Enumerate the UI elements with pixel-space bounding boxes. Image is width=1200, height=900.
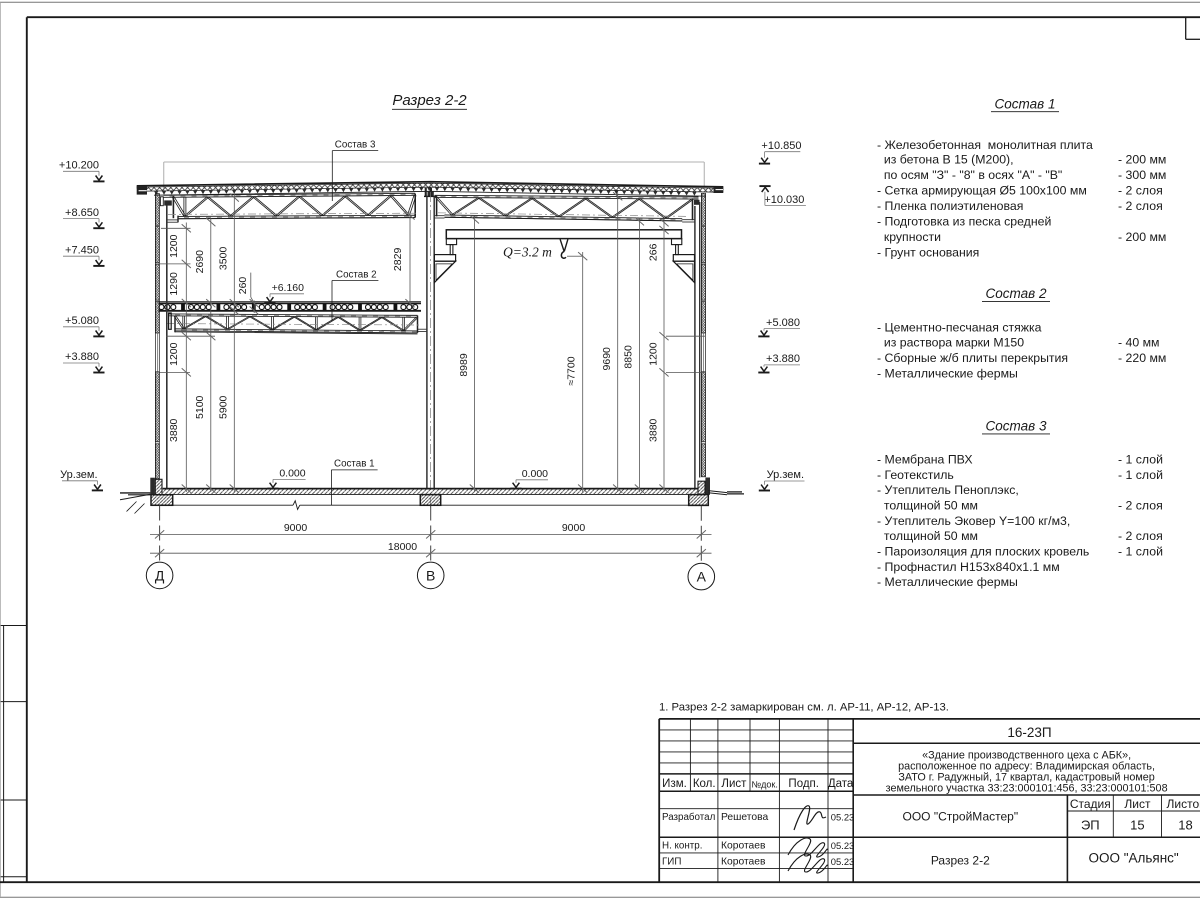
svg-text:- Пароизоляция для плоских кро: - Пароизоляция для плоских кровель <box>877 545 1089 559</box>
svg-text:земельного участка 33:23:00010: земельного участка 33:23:000101:456, 33:… <box>886 783 1168 795</box>
svg-text:Решетова: Решетова <box>721 812 768 823</box>
svg-text:+8.650: +8.650 <box>65 207 99 219</box>
svg-text:- Сетка армирующая Ø5 100х100: - Сетка армирующая Ø5 100х100 мм <box>877 184 1087 198</box>
svg-text:- Пленка полиэтиленовая: - Пленка полиэтиленовая <box>877 199 1023 213</box>
svg-text:9000: 9000 <box>284 522 308 534</box>
svg-text:- Утеплитель Пеноплэкс,: - Утеплитель Пеноплэкс, <box>877 483 1019 497</box>
svg-text:Лист: Лист <box>721 778 747 790</box>
svg-text:- 1 слой: - 1 слой <box>1118 468 1163 482</box>
svg-text:+3.880: +3.880 <box>766 353 800 365</box>
svg-text:толщиной 50 мм: толщиной 50 мм <box>877 529 978 543</box>
svg-text:- 2 слоя: - 2 слоя <box>1118 499 1163 513</box>
svg-text:ООО "СтройМастер": ООО "СтройМастер" <box>903 810 1019 824</box>
svg-text:2690: 2690 <box>194 250 206 274</box>
svg-text:5100: 5100 <box>194 395 206 419</box>
svg-text:1. Разрез 2-2 замаркирован см.: 1. Разрез 2-2 замаркирован см. л. АР-11,… <box>659 701 949 713</box>
svg-text:Состав 2: Состав 2 <box>986 286 1047 301</box>
svg-text:0.000: 0.000 <box>279 468 305 480</box>
svg-text:- 300 мм: - 300 мм <box>1118 168 1166 182</box>
svg-text:260: 260 <box>237 277 249 295</box>
svg-text:15: 15 <box>1130 817 1144 832</box>
svg-text:Н. контр.: Н. контр. <box>662 840 702 851</box>
svg-text:- Сборные ж/б плиты перекрытия: - Сборные ж/б плиты перекрытия <box>877 351 1068 365</box>
svg-text:+5.080: +5.080 <box>65 315 99 327</box>
svg-text:ГИП: ГИП <box>662 856 681 867</box>
svg-text:Лист: Лист <box>1124 797 1151 811</box>
svg-text:- Металлические фермы: - Металлические фермы <box>877 575 1018 589</box>
svg-text:ООО "Альянс": ООО "Альянс" <box>1088 851 1178 866</box>
svg-text:- 2 слоя: - 2 слоя <box>1118 199 1163 213</box>
svg-text:А: А <box>697 569 707 585</box>
svg-text:по осям "З" - "8" в осях "А" -: по осям "З" - "8" в осях "А" - "В" <box>877 168 1062 182</box>
svg-text:9690: 9690 <box>601 347 613 371</box>
svg-text:≈7700: ≈7700 <box>565 356 577 385</box>
svg-text:16-23П: 16-23П <box>1007 725 1051 740</box>
svg-text:266: 266 <box>647 243 659 261</box>
svg-text:Д: Д <box>155 567 165 583</box>
svg-text:- 200 мм: - 200 мм <box>1118 230 1166 244</box>
svg-text:Листов: Листов <box>1167 797 1200 811</box>
svg-text:05.23: 05.23 <box>831 812 854 823</box>
svg-text:+7.450: +7.450 <box>65 244 99 256</box>
svg-text:+6.160: +6.160 <box>272 282 305 294</box>
svg-text:Состав 1: Состав 1 <box>995 96 1056 111</box>
svg-text:- Железобетонная монолитная п: - Железобетонная монолитная плита <box>877 138 1093 152</box>
svg-text:+5.080: +5.080 <box>766 317 800 329</box>
svg-text:1200: 1200 <box>168 234 180 258</box>
svg-text:- 1 слой: - 1 слой <box>1118 453 1163 467</box>
svg-text:Q=3.2 т: Q=3.2 т <box>503 245 552 260</box>
svg-text:Ур.зем.: Ур.зем. <box>767 469 804 481</box>
svg-text:Подп.: Подп. <box>788 778 819 790</box>
svg-text:Стадия: Стадия <box>1070 797 1111 811</box>
svg-text:крупности: крупности <box>877 230 941 244</box>
svg-text:В: В <box>426 567 435 583</box>
svg-text:Коротаев: Коротаев <box>721 840 766 851</box>
svg-text:Дата: Дата <box>828 778 854 790</box>
svg-text:Разработал: Разработал <box>662 812 716 823</box>
svg-text:Ур.зем.: Ур.зем. <box>60 469 97 481</box>
svg-text:- 200 мм: - 200 мм <box>1118 153 1166 167</box>
svg-text:- Утеплитель Эковер Y=100 кг/м: - Утеплитель Эковер Y=100 кг/м3, <box>877 514 1070 528</box>
svg-text:- Геотекстиль: - Геотекстиль <box>877 468 954 482</box>
svg-text:+3.880: +3.880 <box>65 351 99 363</box>
svg-text:- 2 слоя: - 2 слоя <box>1118 529 1163 543</box>
svg-text:Разрез 2-2: Разрез 2-2 <box>931 853 990 867</box>
svg-text:05.23: 05.23 <box>831 856 854 867</box>
svg-text:толщиной 50 мм: толщиной 50 мм <box>877 499 978 513</box>
svg-text:18000: 18000 <box>388 541 417 553</box>
svg-text:0.000: 0.000 <box>522 468 548 480</box>
svg-text:8850: 8850 <box>623 345 635 369</box>
svg-text:+10.200: +10.200 <box>59 160 99 172</box>
svg-text:1200: 1200 <box>168 342 180 366</box>
svg-text:9000: 9000 <box>562 522 586 534</box>
svg-text:- Грунт основания: - Грунт основания <box>877 246 979 260</box>
svg-text:Разрез 2-2: Разрез 2-2 <box>392 92 467 109</box>
svg-text:- Цементно-песчаная стяжка: - Цементно-песчаная стяжка <box>877 320 1042 334</box>
svg-text:18: 18 <box>1178 817 1192 832</box>
svg-text:5900: 5900 <box>218 395 230 419</box>
svg-text:из раствора марки М150: из раствора марки М150 <box>877 336 1024 350</box>
svg-text:Кол.: Кол. <box>693 778 716 790</box>
svg-text:1200: 1200 <box>647 342 659 366</box>
svg-text:Состав 1: Состав 1 <box>334 459 375 470</box>
svg-text:- 220 мм: - 220 мм <box>1118 351 1166 365</box>
svg-text:- 40 мм: - 40 мм <box>1118 336 1160 350</box>
svg-text:Изм.: Изм. <box>662 778 687 790</box>
svg-text:- 1 слой: - 1 слой <box>1118 545 1163 559</box>
svg-text:3500: 3500 <box>218 247 230 271</box>
svg-text:- 2 слоя: - 2 слоя <box>1118 184 1163 198</box>
svg-text:- Металлические фермы: - Металлические фермы <box>877 366 1018 380</box>
svg-text:из бетона В 15 (М200),: из бетона В 15 (М200), <box>877 153 1014 167</box>
svg-text:1290: 1290 <box>168 272 180 296</box>
svg-text:2829: 2829 <box>392 248 404 272</box>
svg-text:8989: 8989 <box>458 353 470 377</box>
svg-text:- Подготовка из песка средней: - Подготовка из песка средней <box>877 215 1051 229</box>
svg-text:05.23: 05.23 <box>831 840 854 851</box>
svg-text:ЭП: ЭП <box>1081 817 1100 832</box>
svg-text:3880: 3880 <box>168 418 180 442</box>
svg-text:- Профнастил Н153х840х1.1 мм: - Профнастил Н153х840х1.1 мм <box>877 560 1060 574</box>
svg-text:Состав 3: Состав 3 <box>335 140 376 151</box>
svg-text:Состав 2: Состав 2 <box>336 270 377 281</box>
svg-text:№док.: №док. <box>752 780 778 790</box>
svg-text:Состав 3: Состав 3 <box>986 419 1047 434</box>
svg-text:Коротаев: Коротаев <box>721 856 766 867</box>
svg-text:+10.850: +10.850 <box>761 140 801 152</box>
svg-text:3880: 3880 <box>647 418 659 442</box>
svg-text:+10.030: +10.030 <box>764 194 804 206</box>
svg-text:- Мембрана ПВХ: - Мембрана ПВХ <box>877 453 973 467</box>
